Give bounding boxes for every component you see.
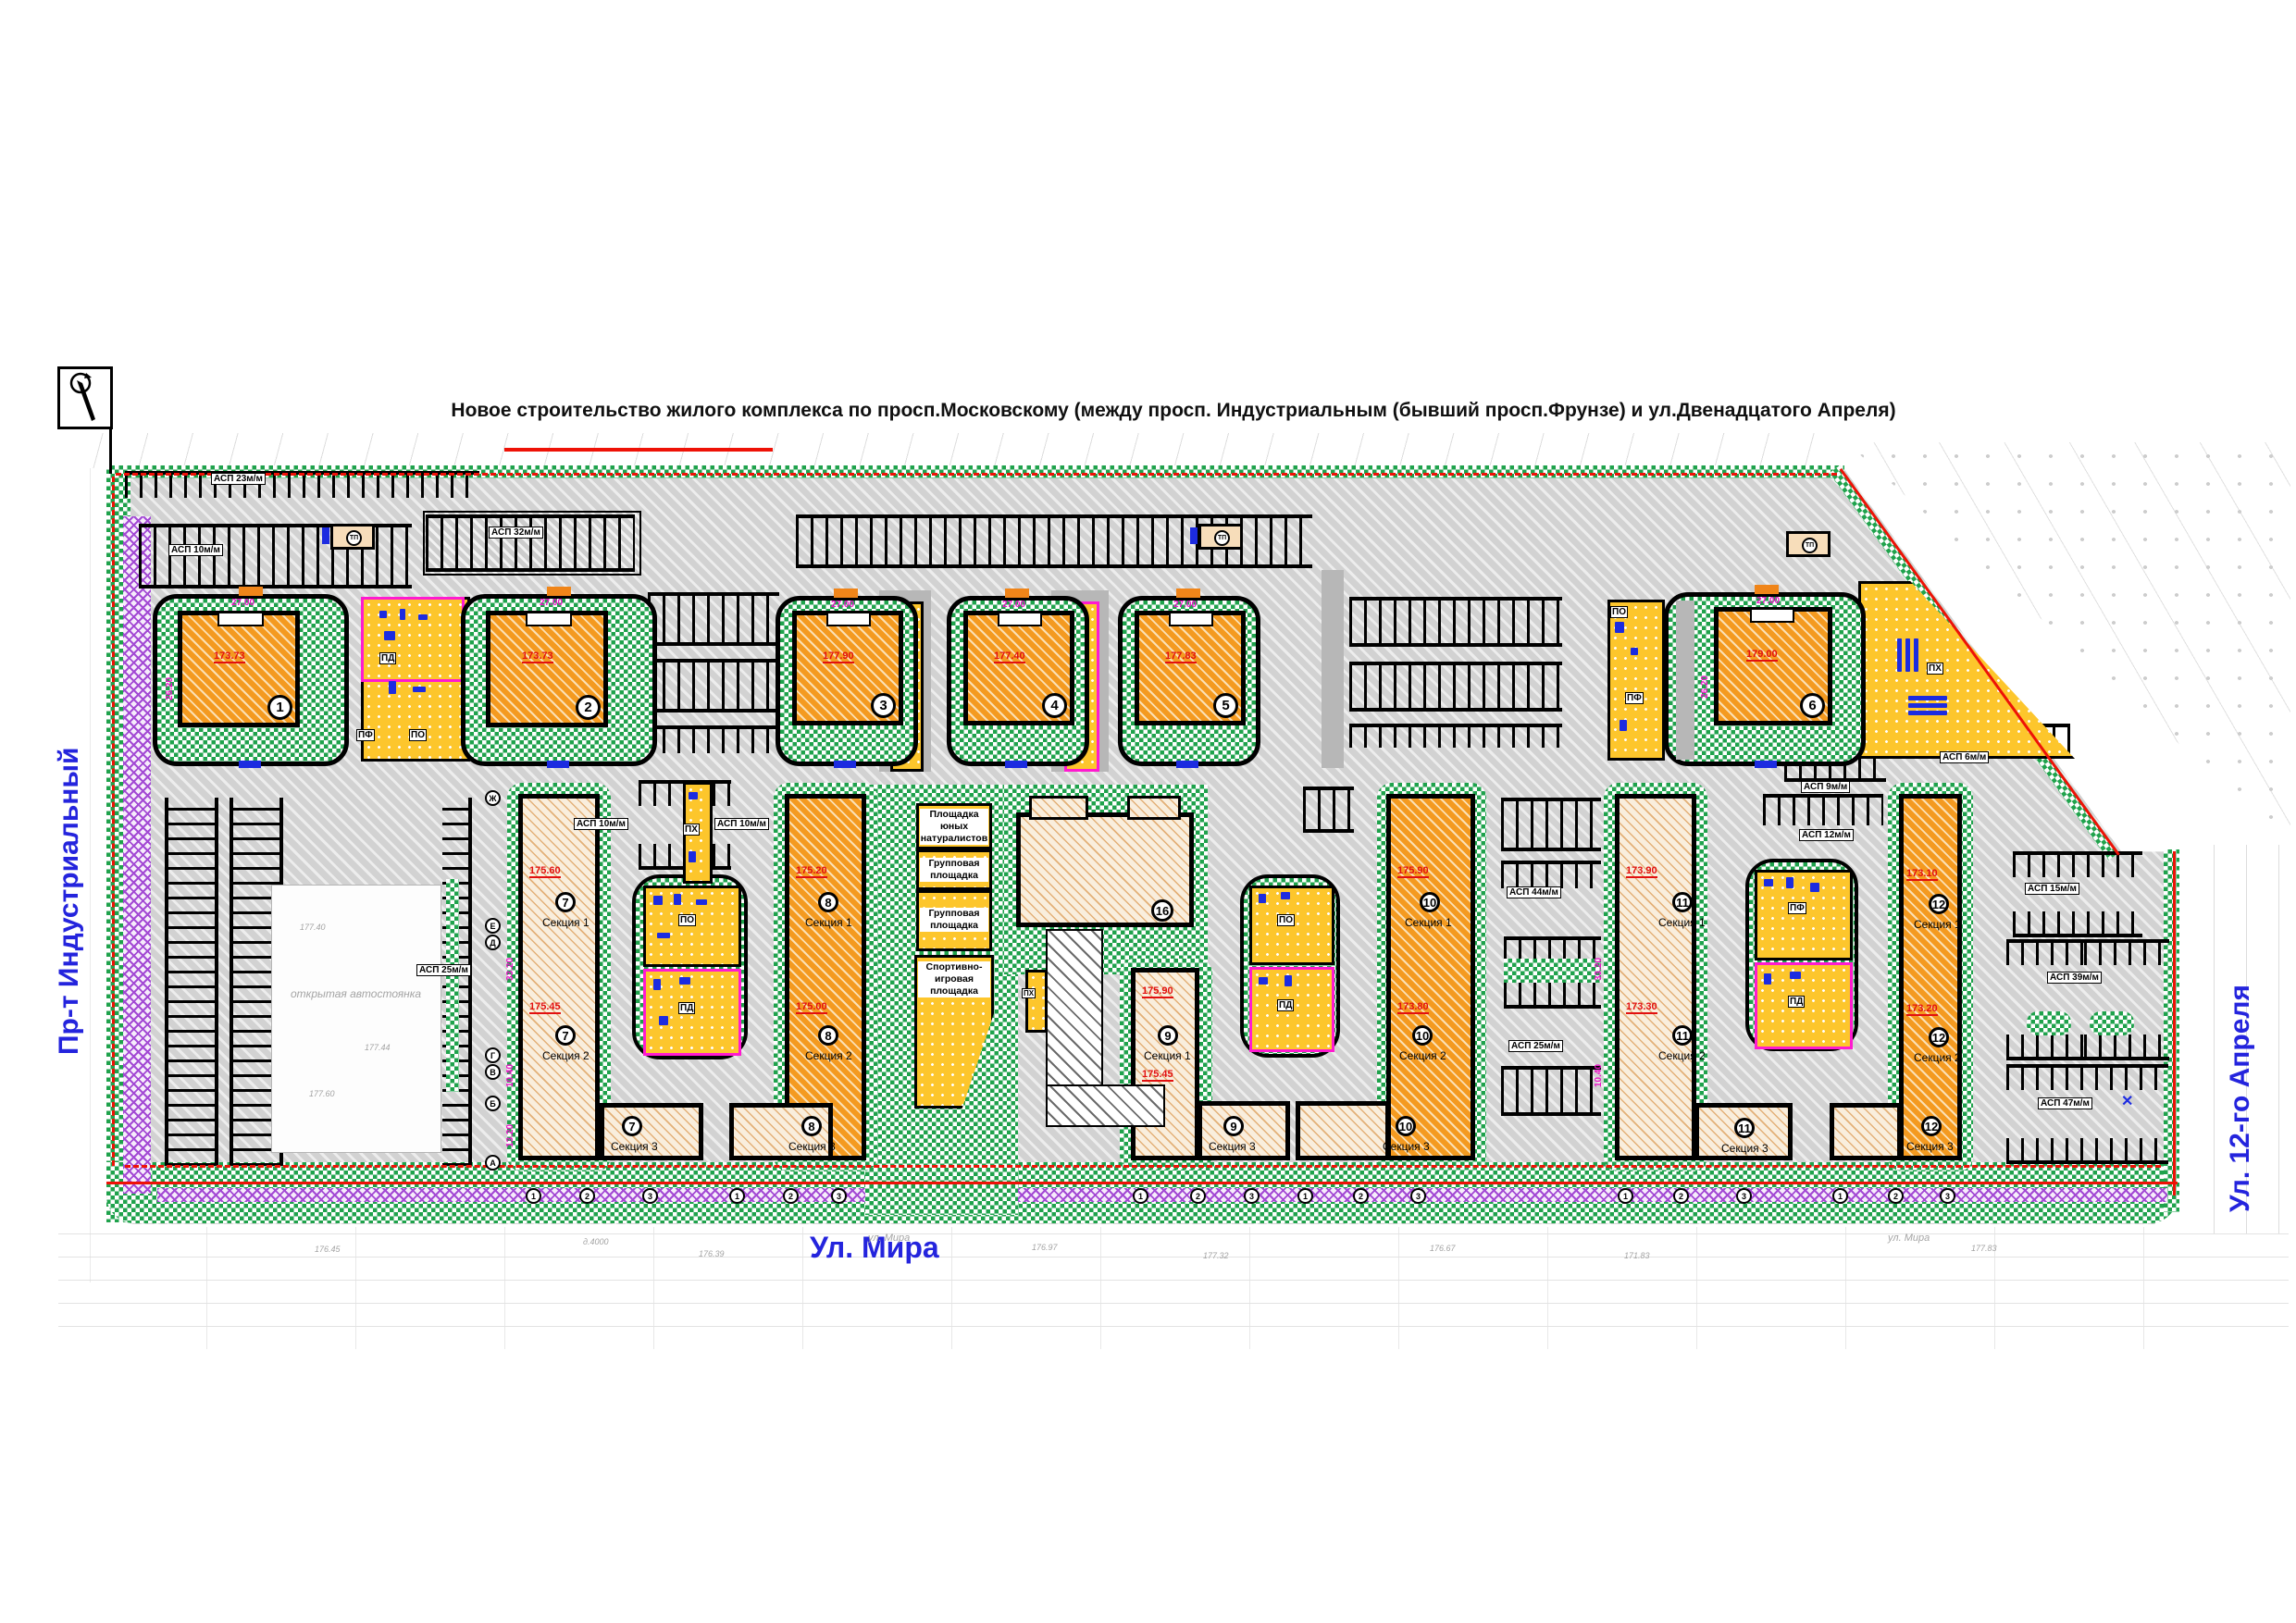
parking-row — [2006, 1035, 2088, 1060]
red-dashed-left — [112, 477, 115, 1166]
parking-row — [648, 725, 779, 753]
red-line-right — [2173, 851, 2176, 1196]
parking-row — [1349, 662, 1562, 688]
parking-label: АСП 12м/м — [1799, 829, 1854, 841]
building-number: 3 — [871, 693, 896, 718]
play-equipment-icon — [1281, 892, 1290, 899]
elevation-mark: 173.30 — [1626, 1001, 1657, 1014]
sport-court-icon — [1897, 638, 1902, 672]
play-equipment-icon — [418, 614, 428, 620]
play-equipment-icon — [1259, 977, 1268, 985]
canopy-icon — [1190, 527, 1198, 544]
parking-row — [191, 798, 218, 1166]
play-equipment-icon — [1285, 975, 1292, 986]
playground-label: ПФ — [356, 729, 375, 741]
section-label: Секция 1 — [1658, 916, 1706, 929]
building-16-wing — [1029, 796, 1088, 820]
driveway — [1676, 601, 1694, 760]
play-equipment-icon — [1631, 648, 1638, 655]
play-equipment-icon — [400, 609, 405, 620]
elevation-mark: 179.00 — [1746, 649, 1778, 662]
elevation-mark: 173.73 — [214, 650, 245, 663]
plan-title: Новое строительство жилого комплекса по … — [58, 400, 2289, 422]
survey-note: 176.67 — [1430, 1244, 1456, 1253]
survey-note: 176.45 — [315, 1245, 341, 1254]
parking-row — [648, 659, 779, 687]
playground-label: ПД — [1788, 996, 1805, 1008]
parking-row — [648, 592, 779, 620]
playground-border — [361, 597, 465, 682]
substation-tp: ТП — [1198, 524, 1243, 550]
area-label: Групповая площадка — [920, 858, 988, 882]
axis-number: 2 — [1190, 1188, 1206, 1204]
playground-label: ПО — [1610, 606, 1628, 618]
substation-tp: ТП — [1786, 531, 1831, 557]
canopy-icon — [1005, 761, 1027, 768]
tower-pad: 179.00 6 27.00 26.20 — [1664, 592, 1866, 766]
parking-row — [2013, 911, 2142, 937]
elevation-mark: 173.73 — [522, 650, 553, 663]
axis-letter: А — [485, 1155, 501, 1171]
lawn-parking-island — [2027, 1011, 2071, 1035]
building-number: 11 — [1734, 1118, 1755, 1138]
play-equipment-icon — [689, 792, 698, 799]
building-number: 9 — [1158, 1025, 1178, 1046]
play-equipment-icon — [413, 687, 426, 692]
parking-label: АСП 47м/м — [2038, 1097, 2092, 1109]
open-parking-label: открытая автостоянка — [291, 987, 421, 1000]
sport-court-icon — [1905, 638, 1910, 672]
entrance-notch — [1169, 613, 1213, 626]
axis-number: 2 — [1888, 1188, 1904, 1204]
area-label: Спортивно-игровая площадка — [918, 961, 990, 997]
section-label: Секция 3 — [1209, 1140, 1256, 1153]
axis-number: 3 — [642, 1188, 658, 1204]
section-label: Секция 1 — [805, 916, 852, 929]
survey-note: 171.83 — [1624, 1251, 1650, 1260]
axis-number: 1 — [1133, 1188, 1148, 1204]
elevation-mark: 175.00 — [796, 1001, 827, 1014]
building-number: 10 — [1396, 1116, 1416, 1136]
playground-label: ПХ — [1022, 988, 1036, 998]
playground-label: ПХ — [683, 824, 700, 836]
survey-bottom-band — [58, 1227, 2289, 1349]
play-equipment-icon — [1615, 622, 1624, 633]
play-equipment-icon — [389, 681, 396, 694]
survey-street-note: ул. Мира — [1888, 1233, 1930, 1244]
canopy-icon — [1176, 761, 1198, 768]
play-equipment-icon — [659, 1016, 668, 1025]
parking-label: АСП 44м/м — [1507, 886, 1561, 898]
playground-label: ПО — [1277, 914, 1295, 926]
entrance-notch — [998, 613, 1042, 626]
building-number: 11 — [1672, 892, 1693, 912]
tower-pad: 173.73 2 27.00 — [461, 594, 657, 766]
parking-row — [2084, 1035, 2169, 1060]
sport-court-icon — [1914, 638, 1918, 672]
parking-label: АСП 10м/м — [574, 818, 628, 830]
parking-row — [230, 798, 257, 1166]
axis-number: 1 — [526, 1188, 541, 1204]
entrance-notch — [526, 613, 572, 626]
street-label-left: Пр-т Индустриальный — [54, 748, 85, 1055]
sport-court-icon — [1908, 696, 1947, 700]
tp-label: ТП — [1214, 530, 1230, 546]
axis-number: 3 — [1736, 1188, 1752, 1204]
dimension-label: 27.00 — [231, 598, 254, 608]
building-number: 9 — [1223, 1116, 1244, 1136]
parking-row — [2084, 939, 2169, 965]
section-label: Секция 3 — [788, 1140, 836, 1153]
building-10-wing — [1296, 1101, 1390, 1160]
parking-label: АСП 6м/м — [1940, 751, 1989, 763]
parking-row — [1501, 1066, 1601, 1092]
entrance-notch — [1750, 610, 1794, 623]
canopy-icon — [834, 761, 856, 768]
survey-note: д.4000 — [583, 1237, 609, 1246]
dimension-label: 26.20 — [165, 677, 175, 700]
axis-number: 3 — [1244, 1188, 1260, 1204]
building-12-wing — [1830, 1103, 1902, 1160]
axis-letter: Д — [485, 935, 501, 950]
elevation-mark: 173.80 — [1397, 1001, 1429, 1014]
building-10 — [1386, 794, 1475, 1160]
building-number: 6 — [1800, 693, 1825, 718]
section-label: Секция 3 — [1721, 1142, 1769, 1155]
building-number: 7 — [622, 1116, 642, 1136]
tower-pad: 177.83 5 27.00 — [1118, 596, 1260, 766]
survey-note: 176.97 — [1032, 1243, 1058, 1252]
area-label: Площадка юных натуралистов — [920, 809, 988, 845]
section-label: Секция 1 — [1144, 1049, 1191, 1062]
dimension-label: 10.40 — [1594, 1064, 1604, 1087]
building-16-wing — [1127, 796, 1181, 820]
building-3: 177.90 3 — [792, 611, 903, 725]
section-label: Секция 3 — [1383, 1140, 1430, 1153]
section-label: Секция 2 — [805, 1049, 852, 1062]
ramp-area — [1046, 929, 1103, 1088]
red-dashed-bottom — [125, 1165, 2161, 1168]
play-equipment-icon — [653, 896, 663, 905]
axis-number: 2 — [1673, 1188, 1689, 1204]
building-1: 173.73 1 — [178, 611, 300, 727]
parking-label: АСП 25м/м — [416, 964, 471, 976]
axis-number: 1 — [729, 1188, 745, 1204]
axis-number: 1 — [1297, 1188, 1313, 1204]
play-equipment-icon — [696, 899, 707, 905]
elevation-mark: 175.90 — [1142, 985, 1173, 998]
building-number: 10 — [1412, 1025, 1433, 1046]
survey-note: 177.60 — [309, 1089, 335, 1098]
parking-label: АСП 32м/м — [489, 527, 543, 539]
survey-note: 177.32 — [1203, 1251, 1229, 1260]
playground-label: ПО — [409, 729, 427, 741]
tower-pad: 177.90 3 27.00 — [776, 596, 918, 766]
play-equipment-icon — [379, 611, 387, 618]
frame-line — [109, 427, 112, 474]
parking-row — [1349, 597, 1562, 623]
axis-number: 3 — [1410, 1188, 1426, 1204]
street-label-right: Ул. 12-го Апреля — [2225, 985, 2256, 1212]
building-4: 177.40 4 — [963, 611, 1074, 725]
dimension-label: 27.00 — [831, 600, 854, 610]
building-number: 2 — [576, 695, 601, 720]
building-5: 177.83 5 — [1135, 611, 1246, 725]
area-box: Площадка юных натуралистов — [916, 803, 992, 849]
parking-row — [1504, 983, 1601, 1009]
tp-label: ТП — [1802, 538, 1818, 553]
parking-label: АСП 10м/м — [714, 818, 769, 830]
entrance-mark-icon — [1176, 588, 1200, 598]
dimension-label: 26.20 — [1700, 675, 1710, 699]
axis-number: 1 — [1832, 1188, 1848, 1204]
survey-note: 177.44 — [365, 1043, 391, 1052]
building-number: 4 — [1042, 693, 1067, 718]
axis-number: 3 — [831, 1188, 847, 1204]
axis-letter: Б — [485, 1096, 501, 1111]
tower-pad: 177.40 4 27.00 — [947, 596, 1089, 766]
elevation-mark: 175.45 — [1142, 1069, 1173, 1082]
playground-label: ПД — [379, 652, 396, 664]
red-line-top — [116, 473, 1837, 476]
parking-row — [1303, 809, 1354, 833]
elevation-mark: 175.45 — [529, 1001, 561, 1014]
play-equipment-icon — [674, 894, 681, 905]
elevation-mark: 175.60 — [529, 865, 561, 878]
play-equipment-icon — [384, 631, 395, 640]
elevation-mark: 175.90 — [1397, 865, 1429, 878]
axis-number: 1 — [1618, 1188, 1633, 1204]
section-label: Секция 2 — [1399, 1049, 1446, 1062]
building-number: 7 — [555, 1025, 576, 1046]
parking-row — [2006, 1138, 2168, 1164]
playground-label: ПО — [678, 914, 696, 926]
parking-row — [1501, 824, 1601, 851]
parking-row — [1349, 724, 1562, 748]
axis-letter: Е — [485, 918, 501, 934]
section-label: Секция 2 — [1914, 1051, 1961, 1064]
dimension-label: 27.00 — [1756, 596, 1780, 606]
elevation-mark: 175.20 — [796, 865, 827, 878]
elevation-mark: 177.90 — [823, 650, 854, 663]
building-number: 8 — [818, 892, 838, 912]
parking-row — [1763, 794, 1883, 825]
parking-row — [2006, 939, 2088, 965]
elevation-mark: 173.10 — [1906, 868, 1938, 881]
parking-row — [1303, 787, 1354, 811]
parking-row — [648, 618, 779, 646]
section-label: Секция 3 — [1906, 1140, 1954, 1153]
building-number: 12 — [1929, 894, 1949, 914]
area-label: Групповая площадка — [920, 908, 988, 932]
building-number: 16 — [1151, 899, 1173, 922]
red-line-mark — [504, 448, 773, 452]
parking-row — [2013, 851, 2142, 877]
playground-label: ПД — [678, 1002, 695, 1014]
building-number: 12 — [1929, 1027, 1949, 1047]
survey-note: 176.39 — [699, 1249, 725, 1258]
play-equipment-icon — [1764, 973, 1771, 985]
area-box: Групповая площадка — [916, 849, 992, 890]
ramp-area — [1046, 1084, 1165, 1127]
play-equipment-icon — [653, 979, 661, 990]
survey-street-note: ул. Мира — [868, 1233, 910, 1244]
elevation-mark: 177.83 — [1165, 650, 1197, 663]
section-label: Секция 1 — [1405, 916, 1452, 929]
parking-row — [426, 542, 635, 572]
lawn-parking-divider — [1504, 959, 1601, 983]
entrance-mark-icon — [239, 587, 263, 596]
canopy-icon — [239, 761, 261, 768]
axis-letter: Г — [485, 1047, 501, 1063]
building-number: 8 — [801, 1116, 822, 1136]
play-equipment-icon — [1764, 879, 1773, 886]
parking-row — [139, 555, 412, 588]
dimension-label: 33.20 — [505, 958, 515, 981]
red-line-bottom — [106, 1182, 2178, 1184]
playground-label: ПХ — [1927, 663, 1943, 675]
entrance-mark-icon — [1755, 585, 1779, 594]
building-12 — [1899, 794, 1962, 1160]
entrance-mark-icon — [547, 587, 571, 596]
sport-court-icon — [1908, 703, 1947, 708]
canopy-icon — [322, 527, 329, 544]
building-7 — [518, 794, 600, 1160]
parking-label: АСП 15м/м — [2025, 883, 2079, 895]
survey-top-band — [58, 433, 1844, 468]
section-label: Секция 1 — [1914, 918, 1961, 931]
open-parking-area: открытая автостоянка 177.40 177.44 177.6… — [271, 885, 441, 1153]
parking-row — [1349, 621, 1562, 647]
tp-label: ТП — [346, 530, 362, 546]
building-number: 10 — [1420, 892, 1440, 912]
dimension-label: 27.00 — [1002, 600, 1025, 610]
parking-row — [2006, 1064, 2168, 1090]
parking-label: АСП 10м/м — [168, 544, 223, 556]
building-number: 12 — [1921, 1116, 1942, 1136]
building-number: 8 — [818, 1025, 838, 1046]
lawn-parking-island — [2090, 1011, 2134, 1035]
elevation-mark: 173.90 — [1626, 865, 1657, 878]
play-equipment-icon — [1790, 972, 1801, 979]
playground — [1025, 970, 1048, 1033]
play-equipment-icon — [1810, 883, 1819, 892]
entrance-notch — [217, 613, 264, 626]
building-11 — [1615, 794, 1696, 1160]
dimension-label: 27.00 — [1173, 600, 1197, 610]
entrance-mark-icon — [1005, 588, 1029, 598]
entrance-notch — [826, 613, 871, 626]
axis-letter: В — [485, 1064, 501, 1080]
survey-note: 177.83 — [1971, 1244, 1997, 1253]
utility-strip-bottom — [157, 1188, 2167, 1202]
section-label: Секция 3 — [611, 1140, 658, 1153]
building-number: 1 — [267, 695, 292, 720]
parking-row — [648, 685, 779, 712]
canopy-icon — [547, 761, 569, 768]
section-label: Секция 2 — [1658, 1049, 1706, 1062]
axis-number: 3 — [1940, 1188, 1955, 1204]
dimension-label: 27.00 — [540, 598, 563, 608]
sport-court-icon — [1908, 711, 1947, 715]
building-6: 179.00 6 — [1714, 607, 1832, 725]
axis-number: 2 — [783, 1188, 799, 1204]
section-label: Секция 1 — [542, 916, 590, 929]
parking-label: АСП 39м/м — [2047, 972, 2102, 984]
playground-label: ПФ — [1788, 902, 1806, 914]
elevation-mark: 173.20 — [1906, 1003, 1938, 1016]
axis-number: 2 — [579, 1188, 595, 1204]
north-arrow-box — [57, 366, 113, 429]
parking-label: АСП 9м/м — [1801, 781, 1850, 793]
dimension-label: 10.40 — [505, 1064, 515, 1087]
parking-row — [1501, 798, 1601, 825]
building-number: 11 — [1672, 1025, 1693, 1046]
building-number: 5 — [1213, 693, 1238, 718]
building-number: 7 — [555, 892, 576, 912]
north-arrow-icon — [60, 369, 110, 427]
parking-row — [1501, 1090, 1601, 1116]
playground-label: ПД — [1277, 999, 1294, 1011]
play-equipment-icon — [1259, 894, 1266, 903]
entrance-mark-icon — [834, 588, 858, 598]
dimension-label: 13.20 — [505, 1124, 515, 1147]
tower-pad: 173.73 1 27.00 26.20 — [153, 594, 349, 766]
elevation-mark: 177.40 — [994, 650, 1025, 663]
playground-label: ПФ — [1625, 692, 1644, 704]
play-equipment-icon — [657, 933, 670, 938]
survey-note: 177.40 — [300, 923, 326, 932]
area-box: Групповая площадка — [916, 890, 992, 951]
parking-label: АСП 25м/м — [1508, 1040, 1563, 1052]
substation-tp: ТП — [330, 524, 375, 550]
play-equipment-icon — [1786, 877, 1793, 888]
axis-letter: Ж — [485, 790, 501, 806]
dimension-label: 33.20 — [1594, 958, 1604, 981]
parking-row — [165, 798, 192, 1166]
play-equipment-icon — [689, 851, 696, 862]
driveway — [1322, 570, 1344, 768]
parking-row — [1501, 861, 1601, 888]
play-equipment-icon — [1620, 720, 1627, 731]
parking-label: АСП 23м/м — [211, 473, 266, 485]
utility-strip-left — [123, 516, 151, 1194]
helicopter-cross-mark: ✕ — [2121, 1092, 2133, 1110]
building-2: 173.73 2 — [486, 611, 608, 727]
parking-row — [1349, 686, 1562, 712]
canopy-icon — [1755, 761, 1777, 768]
play-equipment-icon — [679, 977, 690, 985]
section-label: Секция 2 — [542, 1049, 590, 1062]
axis-number: 2 — [1353, 1188, 1369, 1204]
site-plan-sheet: { "title": "Новое строительство жилого к… — [0, 0, 2296, 1623]
lawn-parking-divider — [446, 879, 459, 1092]
